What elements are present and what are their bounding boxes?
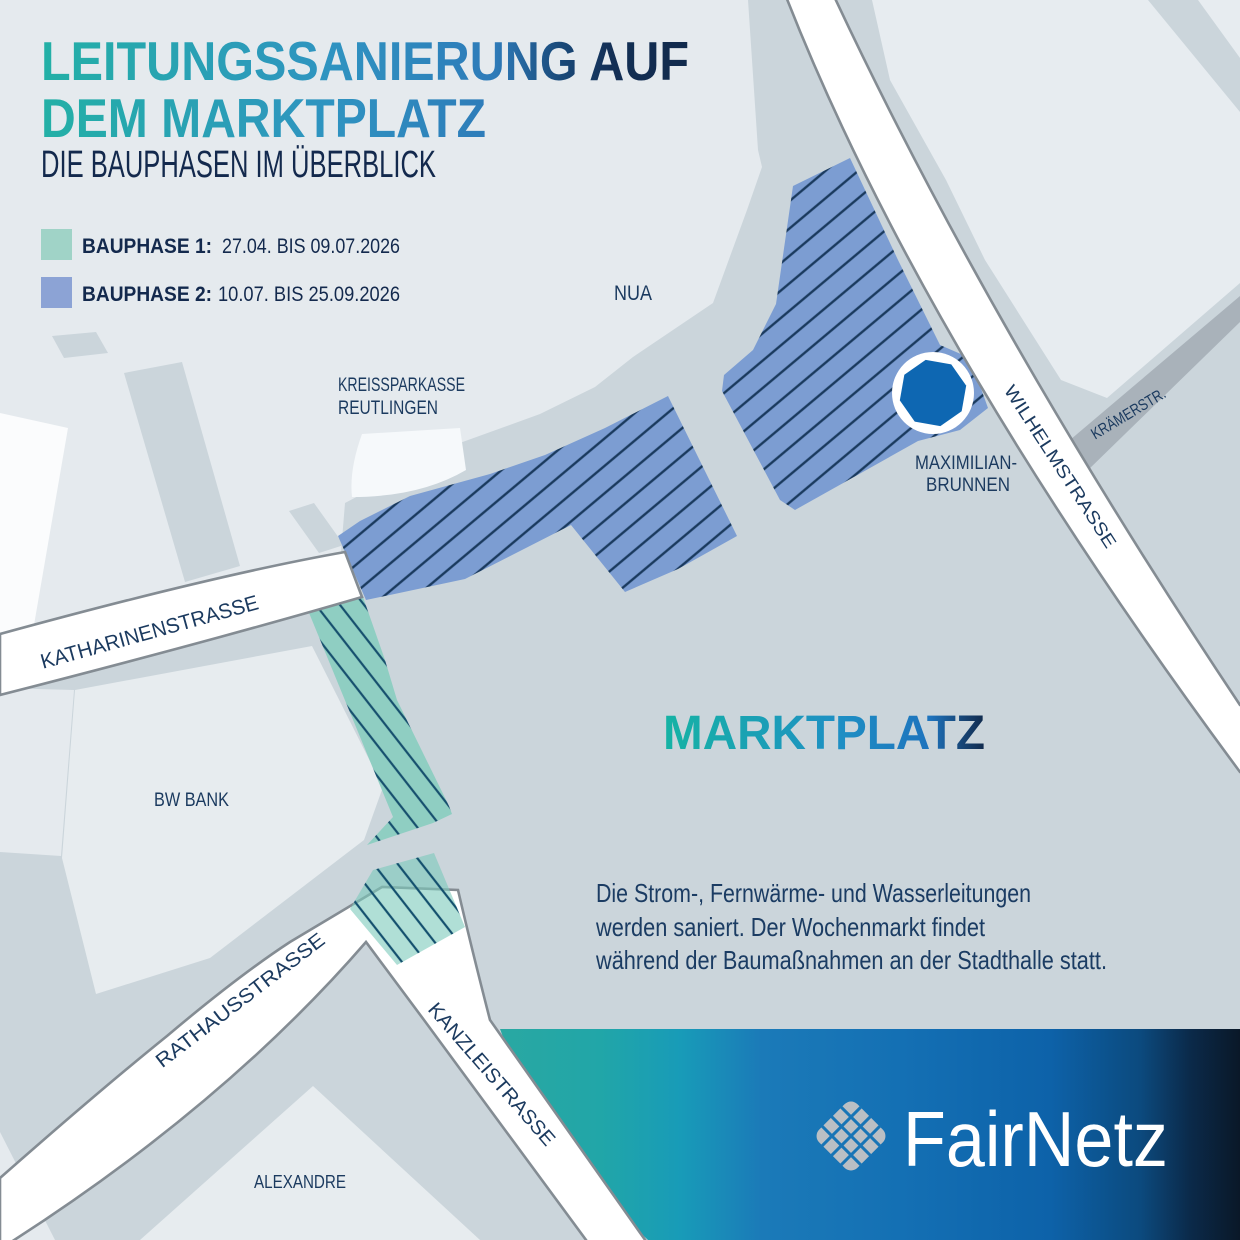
svg-text:BW BANK: BW BANK	[154, 790, 229, 811]
svg-text:LEITUNGSSANIERUNG AUF: LEITUNGSSANIERUNG AUF	[41, 30, 689, 92]
svg-text:BAUPHASE 2:: BAUPHASE 2:	[82, 283, 212, 306]
svg-text:FairNetz: FairNetz	[903, 1095, 1168, 1183]
svg-text:REUTLINGEN: REUTLINGEN	[338, 398, 438, 419]
svg-text:NUA: NUA	[614, 282, 652, 305]
svg-text:BAUPHASE 1:: BAUPHASE 1:	[82, 235, 212, 258]
svg-text:MAXIMILIAN-: MAXIMILIAN-	[915, 453, 1017, 474]
svg-text:werden saniert. Der Wochenmark: werden saniert. Der Wochenmarkt findet	[595, 912, 985, 942]
svg-text:27.04. BIS 09.07.2026: 27.04. BIS 09.07.2026	[222, 235, 400, 258]
svg-text:ALEXANDRE: ALEXANDRE	[254, 1172, 346, 1192]
svg-text:BRUNNEN: BRUNNEN	[926, 475, 1010, 496]
svg-text:Die Strom-, Fernwärme- und Was: Die Strom-, Fernwärme- und Wasserleitung…	[596, 878, 1031, 908]
svg-text:10.07. BIS 25.09.2026: 10.07. BIS 25.09.2026	[218, 283, 400, 306]
svg-text:DEM MARKTPLATZ: DEM MARKTPLATZ	[41, 87, 486, 149]
svg-text:während der Baumaßnahmen an de: während der Baumaßnahmen an der Stadthal…	[595, 945, 1107, 975]
svg-text:DIE BAUPHASEN IM ÜBERBLICK: DIE BAUPHASEN IM ÜBERBLICK	[41, 144, 436, 186]
svg-text:MARKTPLATZ: MARKTPLATZ	[663, 707, 985, 760]
svg-text:KREISSPARKASSE: KREISSPARKASSE	[338, 375, 465, 396]
